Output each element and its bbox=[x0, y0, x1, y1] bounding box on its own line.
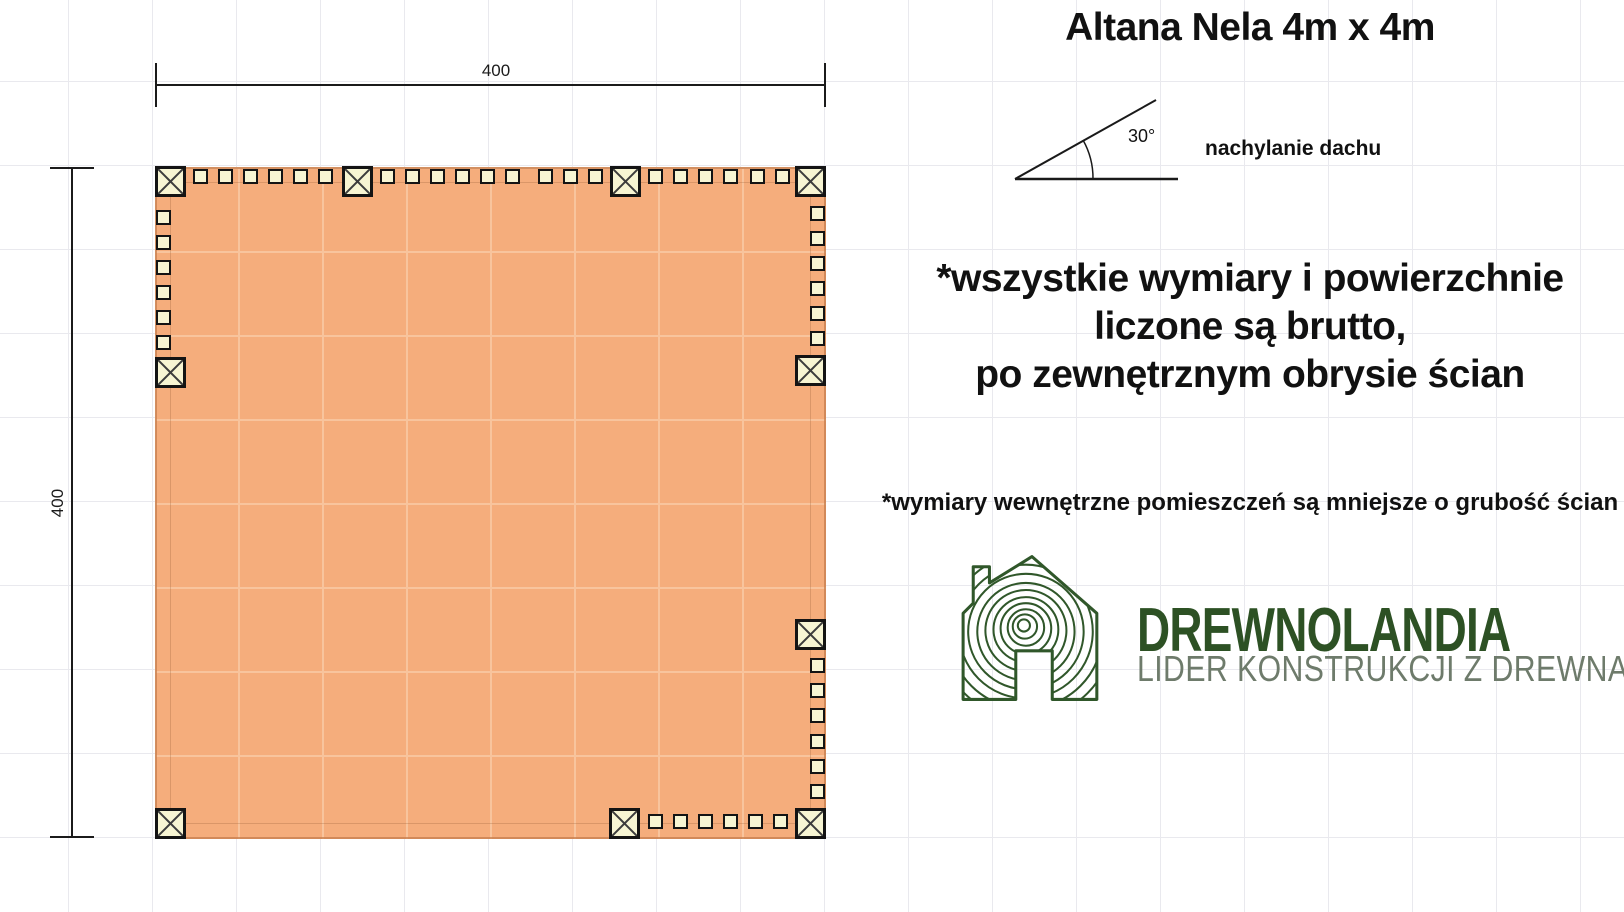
post-marker-icon bbox=[155, 808, 186, 839]
baluster-marker bbox=[156, 335, 171, 350]
dimension-tick-top-left bbox=[155, 63, 157, 107]
baluster-marker bbox=[810, 281, 825, 296]
baluster-marker bbox=[538, 169, 553, 184]
post-marker-icon bbox=[155, 357, 186, 388]
wood-house-icon bbox=[955, 552, 1110, 702]
baluster-marker bbox=[810, 231, 825, 246]
dimension-line-top bbox=[156, 84, 826, 86]
baluster-marker bbox=[156, 285, 171, 300]
dimension-tick-top-right bbox=[824, 63, 826, 107]
post-marker-icon bbox=[795, 619, 826, 650]
baluster-marker bbox=[318, 169, 333, 184]
baluster-marker bbox=[723, 169, 738, 184]
dimension-tick-left-bottom bbox=[50, 836, 94, 838]
baluster-marker bbox=[218, 169, 233, 184]
baluster-marker bbox=[810, 256, 825, 271]
dimension-label-width: 400 bbox=[426, 61, 566, 81]
post-marker-icon bbox=[609, 808, 640, 839]
logo-tagline: LIDER KONSTRUKCJI Z DREWNA bbox=[1137, 648, 1624, 690]
dimension-notes: *wszystkie wymiary i powierzchnie liczon… bbox=[880, 255, 1620, 399]
baluster-marker bbox=[156, 210, 171, 225]
baluster-marker bbox=[563, 169, 578, 184]
baluster-marker bbox=[430, 169, 445, 184]
baluster-marker bbox=[810, 658, 825, 673]
baluster-marker bbox=[673, 169, 688, 184]
baluster-marker bbox=[810, 683, 825, 698]
post-marker-icon bbox=[795, 166, 826, 197]
baluster-marker bbox=[773, 814, 788, 829]
post-marker-icon bbox=[795, 355, 826, 386]
baluster-marker bbox=[810, 206, 825, 221]
baluster-marker bbox=[723, 814, 738, 829]
dimension-line-left bbox=[71, 168, 73, 838]
baluster-marker bbox=[588, 169, 603, 184]
baluster-marker bbox=[698, 169, 713, 184]
baluster-marker bbox=[810, 708, 825, 723]
baluster-marker bbox=[698, 814, 713, 829]
baluster-marker bbox=[748, 814, 763, 829]
note-line-1: *wszystkie wymiary i powierzchnie bbox=[880, 255, 1620, 303]
baluster-marker bbox=[810, 331, 825, 346]
baluster-marker bbox=[380, 169, 395, 184]
post-marker-icon bbox=[155, 166, 186, 197]
baluster-marker bbox=[505, 169, 520, 184]
baluster-marker bbox=[648, 814, 663, 829]
baluster-marker bbox=[480, 169, 495, 184]
post-marker-icon bbox=[342, 166, 373, 197]
roof-pitch-caption: nachylanie dachu bbox=[1205, 137, 1381, 161]
post-marker-icon bbox=[610, 166, 641, 197]
baluster-marker bbox=[156, 260, 171, 275]
baluster-marker bbox=[775, 169, 790, 184]
baluster-marker bbox=[810, 759, 825, 774]
roof-pitch-diagram bbox=[1000, 90, 1200, 190]
gazebo-floor-plan-page: 400 400 Altana Nela 4m x 4m 30° nachylan… bbox=[0, 0, 1624, 912]
baluster-marker bbox=[156, 310, 171, 325]
baluster-marker bbox=[268, 169, 283, 184]
baluster-marker bbox=[193, 169, 208, 184]
baluster-marker bbox=[810, 734, 825, 749]
floor-plan-area bbox=[155, 167, 826, 839]
baluster-marker bbox=[405, 169, 420, 184]
baluster-marker bbox=[455, 169, 470, 184]
baluster-marker bbox=[648, 169, 663, 184]
baluster-marker bbox=[750, 169, 765, 184]
dimension-tick-left-top bbox=[50, 167, 94, 169]
post-marker-icon bbox=[795, 808, 826, 839]
note-line-3: po zewnętrznym obrysie ścian bbox=[880, 351, 1620, 399]
roof-angle-value: 30° bbox=[1128, 126, 1155, 147]
interior-dimensions-note: *wymiary wewnętrzne pomieszczeń są mniej… bbox=[880, 489, 1620, 517]
dimension-label-height: 400 bbox=[48, 473, 68, 533]
company-logo: DREWNOLANDIA LIDER KONSTRUKCJI Z DREWNA bbox=[955, 552, 1575, 717]
note-line-2: liczone są brutto, bbox=[880, 303, 1620, 351]
baluster-marker bbox=[810, 306, 825, 321]
baluster-marker bbox=[673, 814, 688, 829]
baluster-marker bbox=[810, 784, 825, 799]
baluster-marker bbox=[156, 235, 171, 250]
baluster-marker bbox=[243, 169, 258, 184]
page-title: Altana Nela 4m x 4m bbox=[880, 6, 1620, 50]
baluster-marker bbox=[293, 169, 308, 184]
